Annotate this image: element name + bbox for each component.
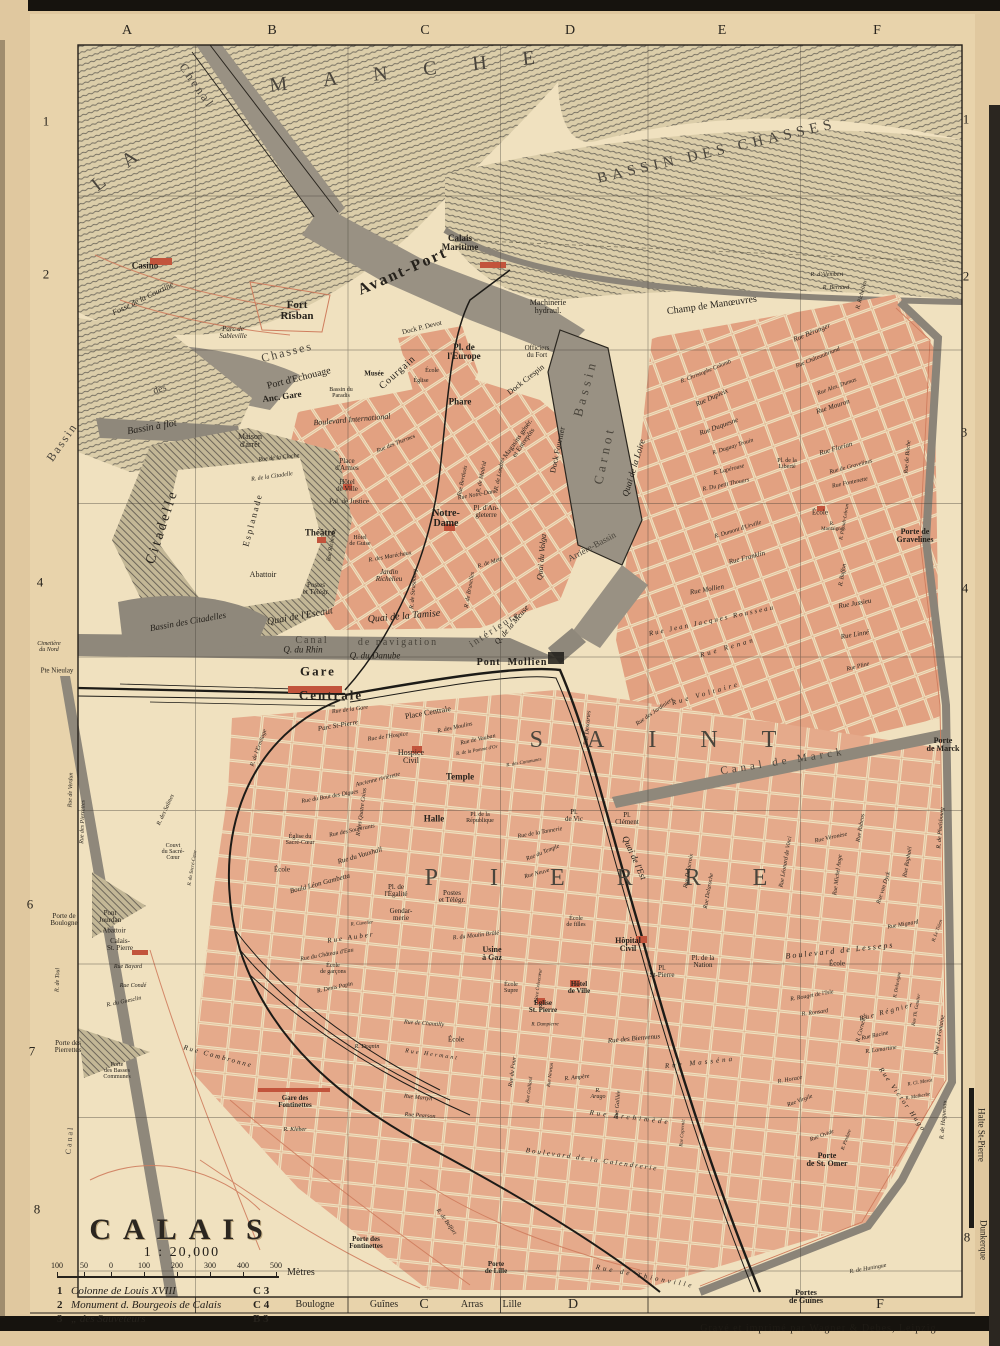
map-label: Pl. Clément [615,812,639,826]
map-label: 4 [962,581,969,594]
map-label: Rue Masséna [665,1056,736,1070]
scale-tick-value: 300 [204,1261,216,1270]
map-label: R. des Maréchaux [368,550,412,564]
map-label: Chenal [177,61,217,111]
map-label: R. de la Pomme d'Or [456,745,498,757]
map-label: 8 [964,1230,971,1243]
map-label: Porte de Lille [485,1261,507,1275]
map-label: Bassin [44,420,79,463]
map-label: Musée [364,370,383,377]
legend-label: „ des Sauveteurs [71,1313,253,1327]
legend-number: 2 [57,1299,71,1313]
map-label: Porte de Gravelines [897,528,934,544]
map-label: R. Christophe Colomb [680,359,732,385]
map-label: Rue Hermant [405,1048,459,1062]
map-label: Machinerie hydraul. [530,299,566,315]
map-label: Rue Mollien [689,584,724,597]
map-label: R. des Moulins [437,721,473,734]
legend-label: Colonne de Louis XVIII [71,1285,253,1299]
map-label: de navigation [358,638,438,648]
map-label: R. Duguay Trouin [712,437,755,456]
map-label: Q. du Danube [350,651,401,660]
map-label: Rue des Jardiniers [635,697,675,728]
map-label: Dock Fournier [549,426,567,474]
map-label: B [267,24,276,38]
map-label: Cimetière du Nord [37,641,60,653]
map-label: Portes de Guînes [789,1289,823,1305]
map-label: R. de Bruxelles [464,571,476,608]
map-label: R. d'Alembert [811,272,844,278]
map-label: R. de Huningue [849,1263,887,1276]
map-label: Carnot [591,425,616,486]
map-label: École [448,1036,464,1043]
map-label: Dunkerque [978,1220,987,1260]
map-label: Dock P. Devot [401,320,442,337]
map-label: SAINT [530,728,821,752]
map-label: Pl. de la Liberté [777,458,797,470]
legend-label: Monument d. Bourgeois de Calais [71,1299,253,1313]
map-label: Porte des Fontinettes [349,1236,382,1250]
map-label: Arras [461,1300,483,1310]
map-label: Hôtel de Guise [349,535,370,547]
map-label: Maison d'arrêt [238,433,262,449]
map-label: Quai de la Tamise [367,609,440,625]
map-label: Rue Franklin [728,550,766,566]
map-label: Hôtel de Ville [568,981,590,995]
map-label: Gare des Fontinettes [278,1095,311,1109]
map-label: Rue Copernic [679,1119,686,1147]
map-label: R. de Belfort [435,1208,457,1236]
map-label: R. de Strasbourg [409,569,419,610]
map-label: Rue Cambronne [183,1044,254,1069]
map-label: Rue van Dyck [876,871,892,905]
map-label: Rue Martyn [404,1093,433,1102]
map-label: Pl. de l'Égalité [384,884,407,898]
map-legend: 1Colonne de Louis XVIIIC 32Monument d. B… [57,1285,357,1326]
map-label: MANCHE [268,44,571,96]
map-label: Hospice Civil [398,749,424,765]
map-label: Rue Châteaubriand [795,346,841,369]
map-label: Citadelle [144,488,182,566]
legend-row: 3 „ des SauveteursB 3 [57,1313,357,1327]
map-label: École [425,368,439,374]
map-label: Rue des Soupirants [329,823,376,839]
map-label: Rue du Four [508,1057,518,1088]
map-label: Rue du Bout des Digues [301,789,359,805]
map-label: Rue Archimède [589,1109,671,1126]
map-label: Rue de l'Hospice [367,731,408,743]
map-label: Rue Florian [819,441,854,457]
map-label: Dock Crespin [506,363,546,397]
map-label: Pl. d'An- gleterre [474,505,499,519]
map-label: 4 [37,575,44,588]
map-label: R. de Metz [477,556,503,570]
map-label: Abattoir [250,571,277,579]
map-label: Gare [300,664,336,677]
map-label: R. du Guesclin [106,995,142,1008]
scale-tick-value: 200 [171,1261,183,1270]
map-label: R. de Phalsbourg [936,807,946,849]
map-label: École [812,509,828,516]
map-title-block: CALAIS 1 : 20,000 Mètres 100500100200300… [57,1213,337,1326]
map-label: Pal. de Justice [329,498,369,505]
map-label: Bassin [571,358,599,418]
map-label: R. Arago [591,1088,606,1100]
map-label: Rue Renan [699,637,756,660]
map-label: R. de Toul [55,968,62,992]
map-label: R. Lamartine [865,1045,897,1055]
map-label: Fort Risban [280,300,313,322]
map-label: Postes et Télégr. [439,890,465,904]
map-label: Jardin Richelieu [376,569,402,583]
map-label: Rue La Fontaine [933,1015,946,1056]
map-label: Rue du Temple [525,844,560,863]
map-label: Rue Duquesne [699,417,740,438]
map-label: Rue de Chantilly [404,1020,445,1029]
scale-tick-value: 500 [270,1261,282,1270]
map-label: Rue Auber [327,931,375,945]
map-label: Parc de Sableville [219,326,247,340]
legend-row: 1Colonne de Louis XVIIIC 3 [57,1285,357,1299]
map-label: École [274,866,290,873]
map-label: Boulevard de Lesseps [785,941,895,961]
map-label: Pl. de la Nation [692,955,715,969]
map-label: Rue Ovide [809,1129,835,1143]
map-label: Officiers du Fort [525,345,550,359]
map-label: PIERRE [425,866,820,890]
map-label: Rue Dupleix [695,388,730,409]
map-label: R. de la Citadelle [251,471,293,483]
map-label: École Supre [504,982,518,994]
map-label: Halte St-Pierre [976,1108,985,1162]
map-title: CALAIS [57,1213,307,1247]
map-label: Halle [424,814,445,823]
map-label: Porte des Pierrettes [55,1040,81,1054]
map-label: Arrière-Bassin [566,531,617,564]
map-label: Porte de Boulogne [50,913,77,927]
legend-number: 3 [57,1313,71,1327]
scale-tick [276,1272,277,1278]
map-label: R. Dampierre [531,1022,558,1027]
map-label: Canal [65,1125,76,1154]
map-label: Usine à Gaz [482,946,502,962]
map-label: R. Bernard [823,285,849,291]
map-label: Rue Bayard [114,964,142,970]
legend-grid-ref: B 3 [253,1313,283,1327]
scale-tick-value: 0 [109,1261,113,1270]
scale-tick [111,1272,112,1278]
map-label: Guînes [370,1300,398,1310]
map-label: 6 [27,897,34,910]
map-label: D [565,24,575,38]
map-label: Chasses [260,340,314,365]
map-label: Boulevard de la Calendrerie [525,1147,658,1173]
map-label: R. Buffon [838,563,848,586]
map-label: Rue Jean Jacques Rousseau [648,604,775,638]
map-label: Bassin du Paradis [329,387,353,399]
map-label: Pl. de Vic [565,809,583,823]
map-label: A [122,24,132,38]
scale-tick [177,1272,178,1278]
map-label: Notre- Dame [432,509,460,529]
scale-bar: Mètres 100500100200300400500 [57,1267,279,1281]
map-label: F [876,1298,884,1312]
map-label: Porte de St. Omer [806,1152,847,1168]
map-label: Rue Victor Hugo [877,1066,927,1133]
map-label: R. Cuvelier [350,920,373,927]
map-label: Quai du Volga [536,534,548,581]
map-label: Q. du Rhin [283,645,322,654]
map-label: R. Horace [777,1075,802,1085]
map-label: Pl. de l'Europe [447,343,480,361]
map-label: R. Cl. Marot [907,1078,933,1087]
map-label: R. Montaigne [821,522,843,532]
map-label: Bould Léon Gambetta [289,873,351,896]
scale-bar-line [57,1276,279,1278]
map-label: C [419,1298,428,1312]
scale-tick-value: 100 [51,1261,63,1270]
map-label: Temple [446,772,474,781]
map-label: Abattoir [102,927,125,934]
map-scale-ratio: 1 : 20,000 [57,1245,307,1261]
map-label: Centrale [299,688,363,701]
map-label: Rue Alex. Dumas [817,377,858,397]
scale-tick [243,1272,244,1278]
map-label: Rue de Bitche [904,440,913,474]
map-label: Calais Maritime [442,234,478,252]
scale-tick [144,1272,145,1278]
map-label: R. Le Titien [932,919,945,943]
map-label: Rue de la Cloche [258,453,300,463]
map-label: Couvt du Sacré- Cœur [162,843,185,861]
map-label: Rue Véronèse [814,832,847,845]
map-label: Rue des Bienvenus [608,1033,661,1045]
scale-tick-value: 400 [237,1261,249,1270]
map-label: Rue Condé [120,983,147,989]
map-label: Bassin à flot [126,419,177,438]
map-label: 8 [34,1202,41,1215]
map-label: Place Centrale [404,705,451,721]
map-label: Rue des Thermes [376,433,416,454]
map-label: R. Du petit Thouars [702,477,750,493]
map-label: 1 [43,114,50,127]
legend-row: 2Monument d. Bourgeois de CalaisC 4 [57,1299,357,1313]
map-label: Champ de Manœuvres [666,295,757,318]
map-label: R. de l'Ermitage [249,729,268,768]
map-label: Rue Pearson [404,1112,435,1120]
map-label: Rue Racine [861,1030,889,1042]
map-label: R. Delavigne [893,972,903,999]
map-label: Hôtel de Ville [336,479,358,493]
map-label: R. Rouget de l'Isle [790,989,834,1003]
map-label: Rue de Gravelines [829,458,873,475]
map-label: Pl. St-Pierre [650,965,675,979]
map-label: R. Pindare [841,1129,853,1151]
map-label: Rue Raphaël [902,846,913,877]
attribution-line: Gravé et imprimé par Wagner & Debes, Lei… [520,1323,940,1334]
map-label: Quai de la Loire [621,438,647,498]
map-label: C [420,24,429,38]
map-label: Pont Mollien [477,658,548,668]
map-label: Rue de la Gare [332,705,369,715]
scale-tick-value: 100 [138,1261,150,1270]
map-label: Fosse de la Courtine [111,281,175,318]
map-label: Courgain [378,354,418,392]
scale-tick [57,1272,58,1278]
map-label: des [152,383,168,397]
map-label: Rue Michel Ange [832,854,844,896]
scale-tick [210,1272,211,1278]
map-label: Pte Nieulay [41,667,74,674]
map-label: Ancienne rivièrette [355,772,401,789]
map-label: Église [414,378,429,384]
map-label: Rue du Vauxhall [337,846,383,865]
map-label: Porte de Marck [927,737,960,753]
map-label: Pl. de la République [466,812,494,824]
map-label: Rue Jussieu [838,598,872,611]
map-label: Magasins génér. et Entrepôts [502,418,540,463]
map-label: École de garçons [320,963,346,975]
map-label: Place d'Armes [335,458,358,472]
map-label: 7 [29,1044,36,1057]
map-label: R. Dognin [355,1044,380,1050]
map-label: Porte des Basses Communes [103,1062,130,1080]
map-label: Rue Béranger [793,322,832,343]
map-label: 2 [963,269,970,282]
map-label: Phare [449,397,472,406]
map-label: R. de Londres [494,457,507,491]
map-label: D [568,1298,578,1312]
map-label: 2 [43,267,50,280]
map-label: 1 [963,112,970,125]
map-label: R. du Sacré-Cœur [187,850,198,886]
map-label: R. Denis Papin [317,981,354,995]
map-label: École de filles [566,916,585,928]
legend-number: 1 [57,1285,71,1299]
map-label: Quai de l'Escaut [266,606,333,628]
map-label: R. Ronsard [801,1008,828,1018]
map-label: Esplanade [241,492,264,547]
map-label: Hôpital Civil [615,937,641,953]
map-label: Bassin des Citadelles [149,611,226,633]
map-label: R. Dumont d'Urville [714,520,762,540]
map-label: Rue Berthois [457,465,469,497]
map-label: Boulevard International [313,413,391,428]
map-label: Rue Rubens [856,813,867,842]
legend-grid-ref: C 3 [253,1285,283,1299]
map-label: Rue Fontenette [832,476,869,490]
map-label: Rue Virgile [786,1094,813,1109]
map-label: R. Kléber [284,1127,307,1133]
map-label: Rue de Vauban [460,733,496,746]
map-label: R. des Salines [156,794,176,827]
map-label: Rue Mignard [887,919,919,931]
map-label: Rue Th. Gautier [912,994,923,1027]
map-label: Église du Sacré-Cœur [286,834,315,846]
map-label: Rue Newton [547,1063,555,1088]
map-label: BASSIN DES CHASSES [596,117,838,187]
map-label: F [873,24,881,38]
map-label: R. de Haguenau [939,1100,948,1139]
map-label: Gendar- merie [390,908,413,922]
map-label: Rue Mouron [815,398,850,416]
map-label: R. Ampère [564,1074,590,1083]
map-label: Calais- St. Pierre [107,938,133,952]
map-label: 3 [961,425,968,438]
scale-unit-label: Mètres [287,1267,315,1278]
legend-grid-ref: C 4 [253,1299,283,1313]
map-labels-layer: ABCDEFCDFBoulogneGuînesArrasLille1246781… [0,0,1000,1346]
map-label: Rue Voltaire [671,681,741,707]
map-label: Pont Jourdan [99,910,121,924]
map-label: Rue de la Tannerie [517,826,563,840]
map-label: Casino [132,261,159,270]
map-label: Lille [503,1300,522,1310]
map-label: LA [88,131,163,196]
map-label: R. Richelieu [855,280,868,310]
map-label: École [829,960,845,967]
map-label: Rue de Verdun [67,773,74,808]
map-label: R. de Madrid [476,461,489,493]
map-label: Parc St-Pierre [317,719,358,733]
map-label: E [718,24,727,38]
map-label: R. du Moulin Brûlé [453,931,500,942]
scale-tick [84,1272,85,1278]
map-label: Avant-Port [356,245,450,299]
map-label: Rue Pline [846,661,870,673]
map-label: R. Malherbe [905,1092,931,1101]
map-label: Rue du Château d'Eau [300,947,354,962]
map-label: Rue des Pierrettes [79,800,87,844]
map-label: Rue de Thionville [595,1264,695,1290]
map-label: Postes et Télégr. [303,582,329,596]
map-label: Rue Gaillard [526,1077,535,1104]
map-label: R. Lapérouse [713,463,745,477]
scale-tick-value: 50 [80,1261,88,1270]
map-label: R. des Communes [506,757,542,768]
map-label: Rue Linné [840,629,869,641]
